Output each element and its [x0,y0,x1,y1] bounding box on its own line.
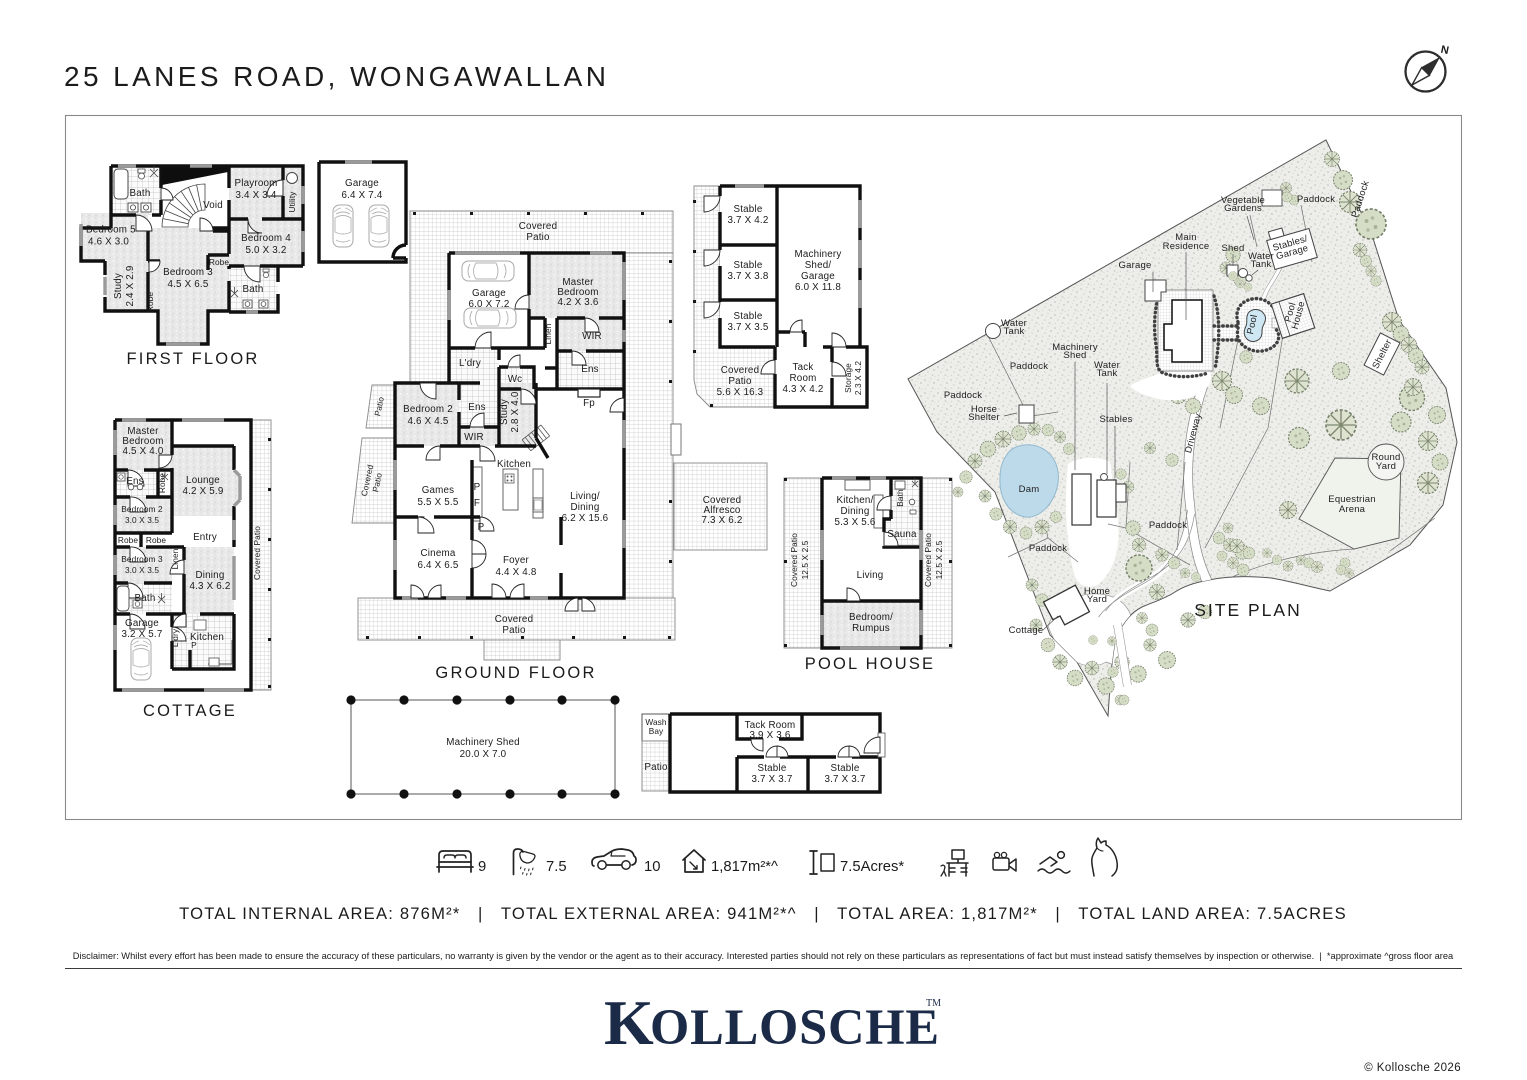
svg-text:4.3 X 6.2: 4.3 X 6.2 [189,581,230,592]
svg-text:Room: Room [790,373,817,384]
svg-text:6.4 X 7.4: 6.4 X 7.4 [341,190,382,201]
svg-text:Study: Study [499,399,510,425]
svg-text:© Kollosche 2026: © Kollosche 2026 [1364,1062,1461,1074]
svg-text:Foyer: Foyer [503,555,530,566]
svg-text:Garage: Garage [125,618,159,629]
svg-text:Dining: Dining [571,502,600,513]
svg-text:3.9 X 3.6: 3.9 X 3.6 [749,730,790,741]
svg-text:GROUND FLOOR: GROUND FLOOR [435,664,596,682]
svg-text:Covered: Covered [495,614,533,625]
svg-text:Tank: Tank [1251,259,1272,270]
svg-text:Shed: Shed [1064,350,1087,361]
svg-text:5.3 X 5.6: 5.3 X 5.6 [834,517,875,528]
svg-text:12.5 X 2.5: 12.5 X 2.5 [934,540,944,579]
svg-text:Shelter: Shelter [968,412,1000,423]
svg-text:Patio: Patio [502,625,526,636]
svg-text:3.7 X 3.7: 3.7 X 3.7 [751,774,792,785]
svg-text:Bath: Bath [895,489,905,507]
svg-text:Bath: Bath [130,188,151,199]
svg-text:Covered Patio: Covered Patio [252,526,262,580]
svg-text:Covered: Covered [721,365,759,376]
svg-text:Bedroom/: Bedroom/ [849,612,893,623]
svg-text:Covered Patio: Covered Patio [923,533,933,587]
svg-text:10: 10 [644,859,660,875]
svg-text:Dam: Dam [1019,484,1040,495]
svg-text:Wc: Wc [508,374,523,385]
svg-text:Bath: Bath [135,593,156,604]
svg-text:20.0 X 7.0: 20.0 X 7.0 [460,749,507,760]
svg-text:Tank: Tank [1004,326,1025,337]
svg-text:Robe: Robe [157,473,167,494]
svg-text:Garage: Garage [472,288,506,299]
svg-text:Sauna: Sauna [887,529,917,540]
svg-text:Garage: Garage [1119,260,1152,271]
svg-text:4.3 X 4.2: 4.3 X 4.2 [782,384,823,395]
svg-text:Storage: Storage [843,363,853,393]
svg-text:TM: TM [926,998,941,1009]
svg-text:2.3 X 4.2: 2.3 X 4.2 [853,361,863,395]
svg-text:Rumpus: Rumpus [852,623,890,634]
svg-text:Paddock: Paddock [944,390,982,401]
svg-text:WIR: WIR [582,331,602,342]
svg-text:Void: Void [203,200,223,211]
svg-text:Living: Living [857,570,884,581]
svg-text:Yard: Yard [1376,461,1396,472]
svg-text:Bedroom 3: Bedroom 3 [163,267,213,278]
svg-text:7.5Acres*: 7.5Acres* [840,859,904,875]
svg-text:Games: Games [422,485,455,496]
svg-text:1,817m²*^: 1,817m²*^ [711,859,778,875]
svg-text:Machinery: Machinery [795,249,842,260]
svg-text:Stable: Stable [831,763,860,774]
svg-text:Bedroom 2: Bedroom 2 [403,404,453,415]
svg-text:Kitchen: Kitchen [190,632,224,643]
svg-text:Dining: Dining [196,570,225,581]
svg-text:3.7 X 4.2: 3.7 X 4.2 [727,215,768,226]
svg-text:Robe: Robe [209,257,230,267]
svg-text:Robe: Robe [145,292,155,313]
svg-text:Entry: Entry [193,532,217,543]
svg-text:5.0 X 3.2: 5.0 X 3.2 [245,245,286,256]
svg-text:4.5 X 6.5: 4.5 X 6.5 [167,279,208,290]
svg-text:Shed: Shed [1222,243,1245,254]
svg-text:Cinema: Cinema [421,548,456,559]
svg-text:Bath: Bath [243,284,264,295]
svg-text:Bedroom 2: Bedroom 2 [121,504,163,514]
svg-text:P: P [478,522,485,533]
svg-text:Ens: Ens [126,476,143,487]
svg-text:Garage: Garage [345,178,379,189]
svg-text:Stable: Stable [734,311,763,322]
svg-text:SITE PLAN: SITE PLAN [1194,600,1301,620]
svg-text:OLLOSCHE: OLLOSCHE [650,999,940,1055]
svg-text:Ens: Ens [581,364,598,375]
svg-text:Linen: Linen [543,323,553,344]
svg-text:Bedroom 4: Bedroom 4 [241,233,291,244]
svg-text:Patio: Patio [728,376,752,387]
svg-text:3.0 X 3.5: 3.0 X 3.5 [125,565,159,575]
svg-text:4.2 X 3.6: 4.2 X 3.6 [557,297,598,308]
svg-text:TOTAL INTERNAL AREA: 876M²*: TOTAL INTERNAL AREA: 876M²* | TOTAL EXTE… [179,904,1347,923]
svg-text:6.2 X 15.6: 6.2 X 15.6 [562,513,609,524]
svg-text:Robe: Robe [118,535,139,545]
svg-text:5.6 X 16.3: 5.6 X 16.3 [717,387,764,398]
svg-text:Cottage: Cottage [1009,625,1044,636]
svg-text:Playroom: Playroom [235,178,278,189]
svg-text:Covered Patio: Covered Patio [789,533,799,587]
svg-text:7.5: 7.5 [546,859,567,875]
svg-text:L'dry: L'dry [170,628,180,647]
svg-text:F: F [474,498,480,509]
svg-text:Bedroom 5: Bedroom 5 [86,225,136,236]
svg-text:12.5 X 2.5: 12.5 X 2.5 [800,540,810,579]
svg-text:Kitchen/: Kitchen/ [837,495,874,506]
svg-text:4.6 X 3.0: 4.6 X 3.0 [88,237,129,248]
svg-text:Lounge: Lounge [186,475,220,486]
svg-text:Stable: Stable [758,763,787,774]
svg-text:Garage: Garage [801,271,835,282]
svg-text:25 LANES ROAD, WONGAWALLAN: 25 LANES ROAD, WONGAWALLAN [64,61,609,92]
svg-text:4.5 X 4.0: 4.5 X 4.0 [122,446,163,457]
svg-text:4.4 X 4.8: 4.4 X 4.8 [495,567,536,578]
svg-text:Bay: Bay [649,726,664,736]
svg-text:FIRST FLOOR: FIRST FLOOR [127,350,260,368]
svg-text:Kitchen: Kitchen [497,459,531,470]
svg-text:Paddock: Paddock [1029,543,1067,554]
svg-text:WIR: WIR [464,432,484,443]
svg-text:Utility: Utility [287,191,297,213]
svg-text:Gardens: Gardens [1224,203,1262,214]
svg-text:4.6 X 4.5: 4.6 X 4.5 [407,416,448,427]
svg-text:Tack: Tack [793,362,814,373]
svg-text:Patio: Patio [526,232,550,243]
svg-text:K: K [604,987,654,1058]
svg-text:Shed/: Shed/ [805,260,832,271]
svg-text:Covered: Covered [519,221,557,232]
svg-text:Robe: Robe [146,535,167,545]
svg-text:2.8 X 4.0: 2.8 X 4.0 [510,391,521,432]
svg-text:COTTAGE: COTTAGE [143,702,237,720]
svg-text:3.7 X 3.5: 3.7 X 3.5 [727,322,768,333]
svg-text:3.7 X 3.7: 3.7 X 3.7 [824,774,865,785]
svg-text:Paddock: Paddock [1149,520,1187,531]
svg-text:Bedroom 3: Bedroom 3 [121,554,163,564]
svg-text:Disclaimer: Whilst every effor: Disclaimer: Whilst every effort has been… [73,951,1454,961]
svg-text:Fp: Fp [583,398,595,409]
svg-text:Paddock: Paddock [1010,361,1048,372]
svg-text:2.4 X 2.9: 2.4 X 2.9 [125,265,136,306]
svg-text:Arena: Arena [1339,504,1366,515]
svg-text:Ens: Ens [468,402,485,413]
svg-text:Residence: Residence [1163,241,1210,252]
svg-text:3.0 X 3.5: 3.0 X 3.5 [125,515,159,525]
svg-text:9: 9 [478,859,486,875]
svg-text:Linen: Linen [170,548,180,569]
svg-text:6.0 X 11.8: 6.0 X 11.8 [795,282,841,293]
svg-text:Stables: Stables [1099,414,1132,425]
svg-text:L'dry: L'dry [459,358,481,369]
svg-text:Living/: Living/ [570,491,600,502]
svg-text:3.7 X 3.8: 3.7 X 3.8 [727,271,768,282]
svg-text:4.2 X 5.9: 4.2 X 5.9 [182,486,223,497]
svg-text:Dining: Dining [841,506,870,517]
svg-text:Patio: Patio [644,762,668,773]
svg-text:Stable: Stable [734,260,763,271]
svg-text:5.5 X 5.5: 5.5 X 5.5 [417,497,458,508]
svg-text:3.4 X 3.4: 3.4 X 3.4 [235,190,276,201]
svg-text:Study: Study [113,273,124,299]
svg-text:P: P [474,482,481,493]
svg-text:6.4 X 6.5: 6.4 X 6.5 [417,560,458,571]
svg-text:Tank: Tank [1097,368,1118,379]
svg-text:6.0 X 7.2: 6.0 X 7.2 [468,299,509,310]
svg-text:Paddock: Paddock [1297,194,1335,205]
svg-text:7.3 X 6.2: 7.3 X 6.2 [701,515,742,526]
svg-text:3.2 X 5.7: 3.2 X 5.7 [121,629,162,640]
svg-text:Stable: Stable [734,204,763,215]
svg-text:Machinery Shed: Machinery Shed [446,737,520,748]
svg-text:POOL HOUSE: POOL HOUSE [805,655,936,673]
svg-text:Yard: Yard [1087,594,1107,605]
